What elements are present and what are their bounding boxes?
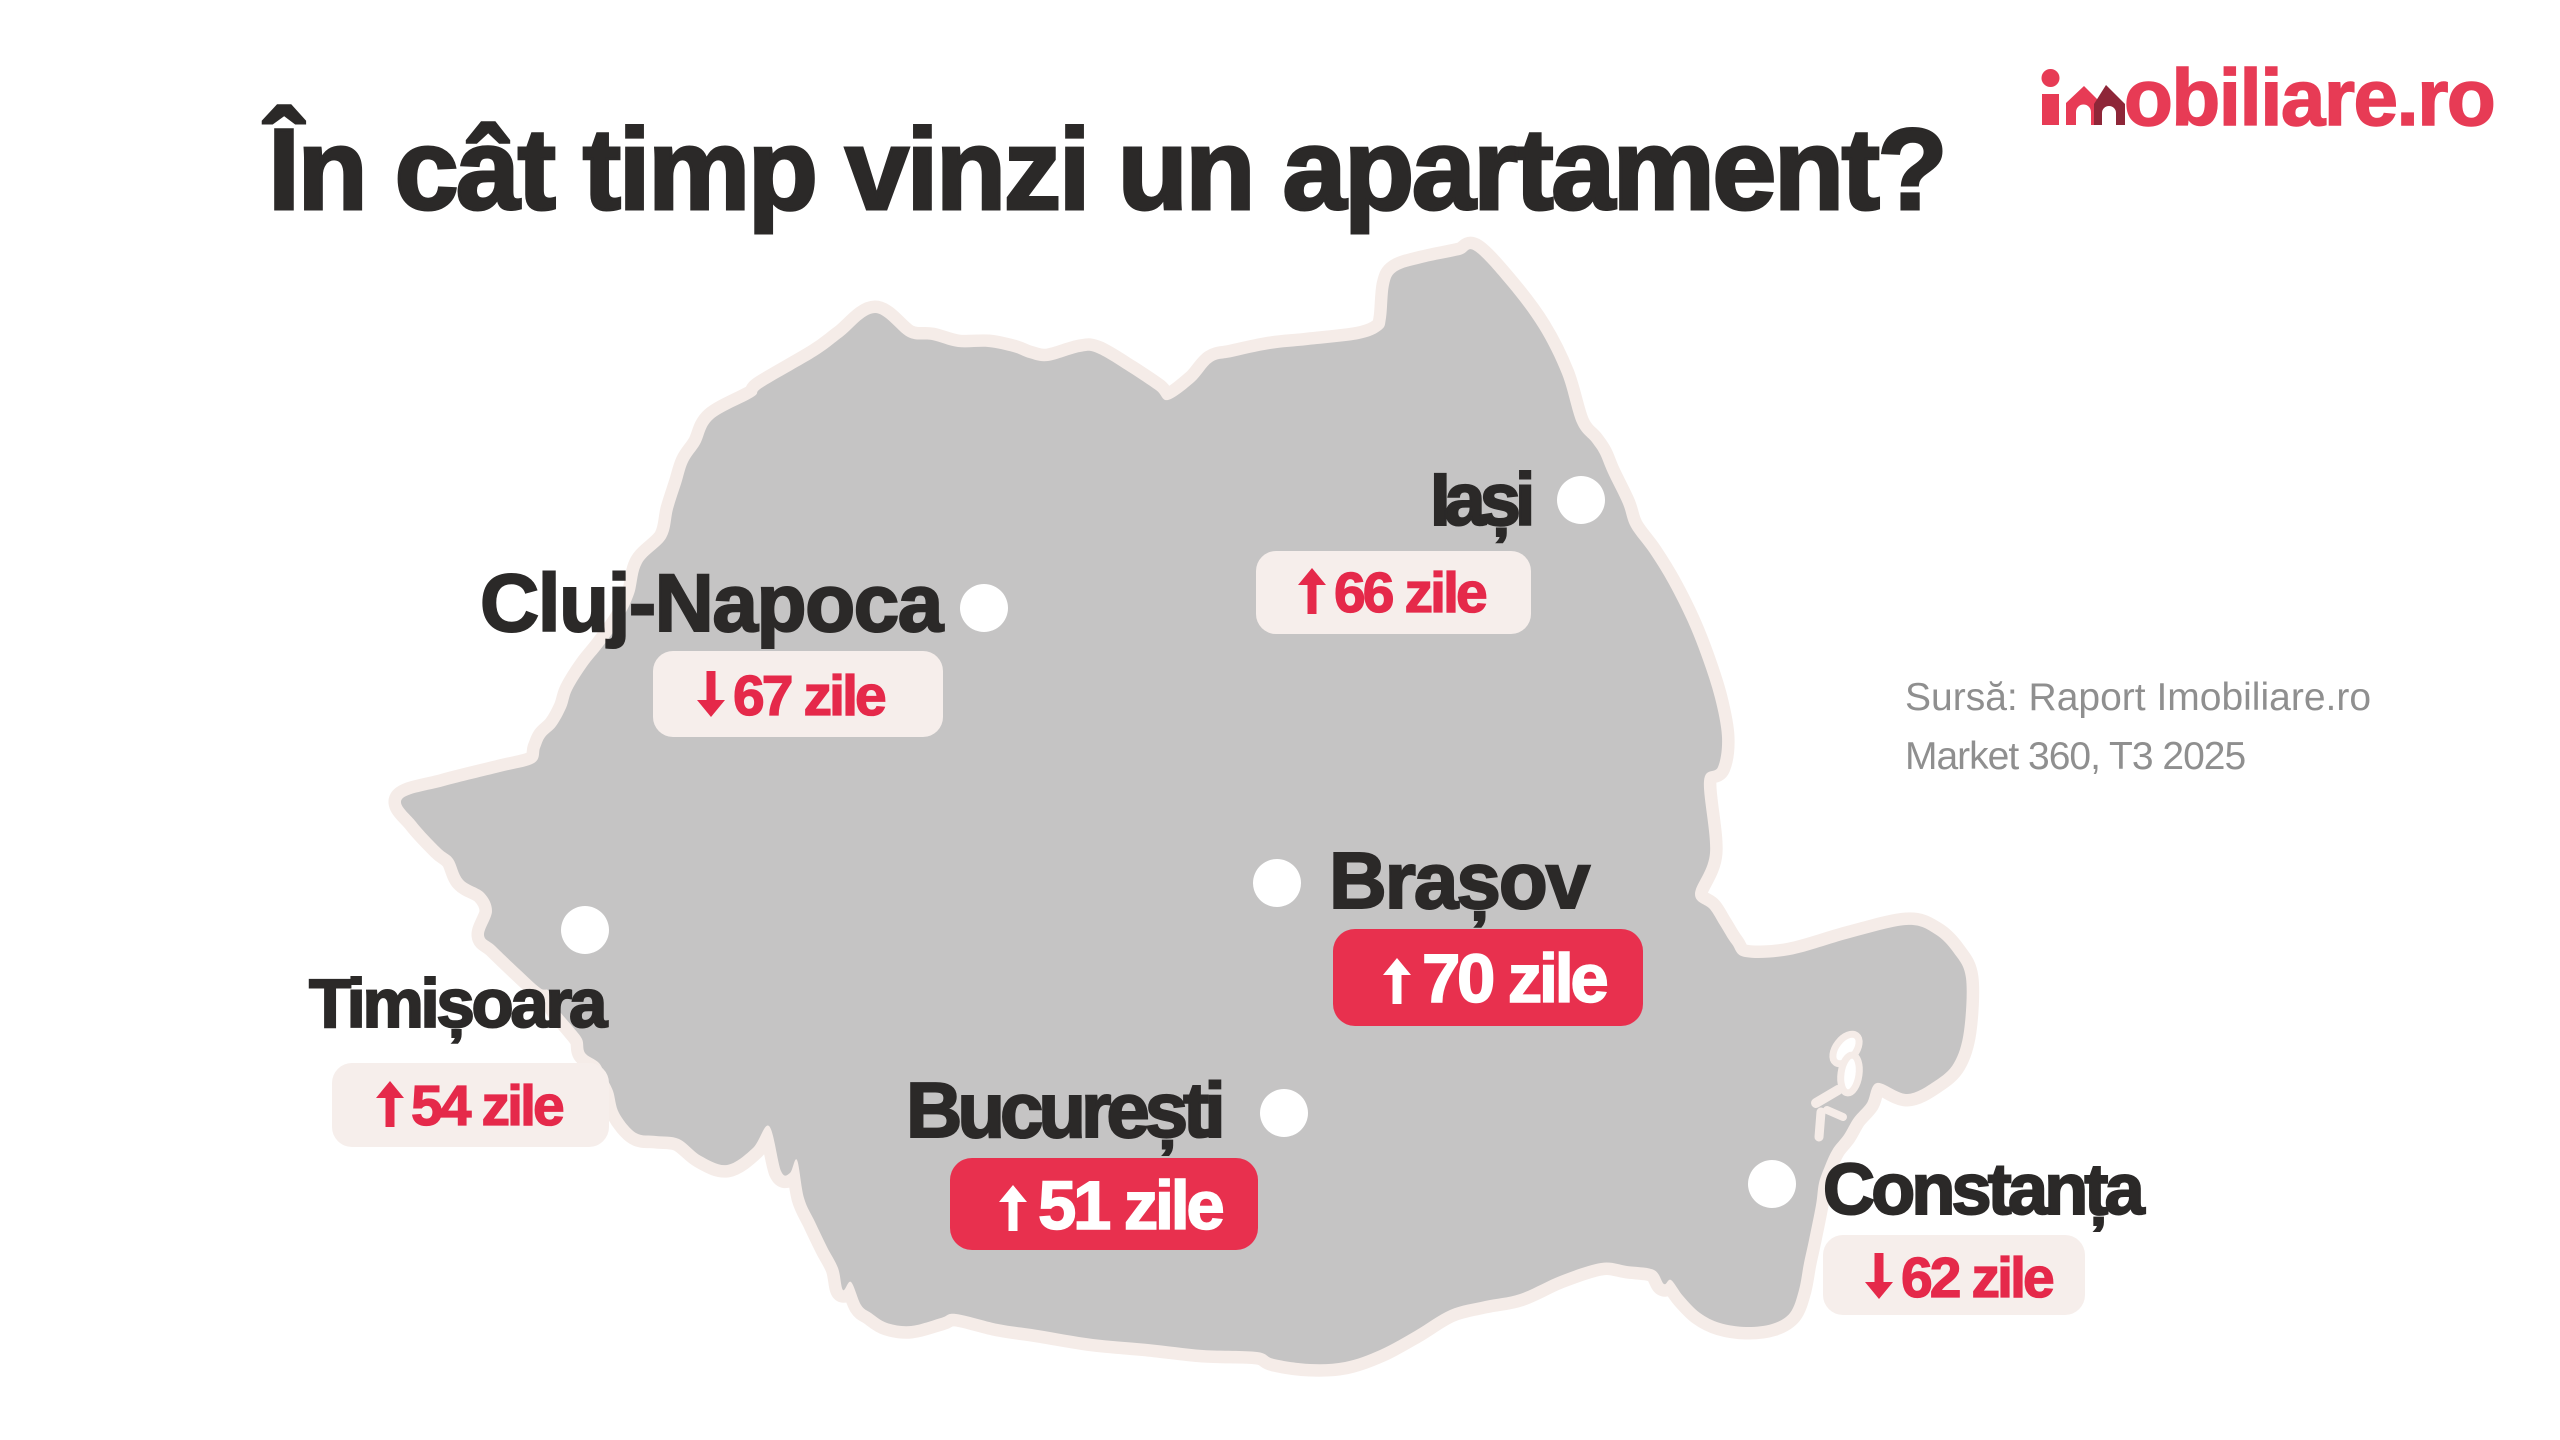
svg-text:Iași: Iași [1430, 458, 1531, 542]
svg-text:Timișoara: Timișoara [309, 965, 608, 1043]
svg-text:54 zile: 54 zile [411, 1074, 563, 1138]
svg-text:Market 360, T3 2025: Market 360, T3 2025 [1905, 735, 2245, 778]
svg-text:Constanța: Constanța [1823, 1150, 2146, 1231]
svg-text:51 zile: 51 zile [1038, 1167, 1223, 1244]
svg-text:Brașov: Brașov [1329, 836, 1591, 927]
svg-text:62 zile: 62 zile [1901, 1246, 2053, 1310]
svg-text:obiliare.ro: obiliare.ro [2124, 53, 2494, 142]
svg-text:București: București [906, 1066, 1221, 1156]
svg-text:67 zile: 67 zile [733, 664, 885, 728]
svg-text:66 zile: 66 zile [1334, 561, 1486, 625]
svg-text:70 zile: 70 zile [1422, 940, 1607, 1017]
svg-text:Cluj-Napoca: Cluj-Napoca [480, 558, 945, 649]
svg-text:Sursă: Raport Imobiliare.ro: Sursă: Raport Imobiliare.ro [1905, 676, 2371, 719]
svg-text:În cât timp vinzi un apartamen: În cât timp vinzi un apartament? [263, 105, 1945, 234]
